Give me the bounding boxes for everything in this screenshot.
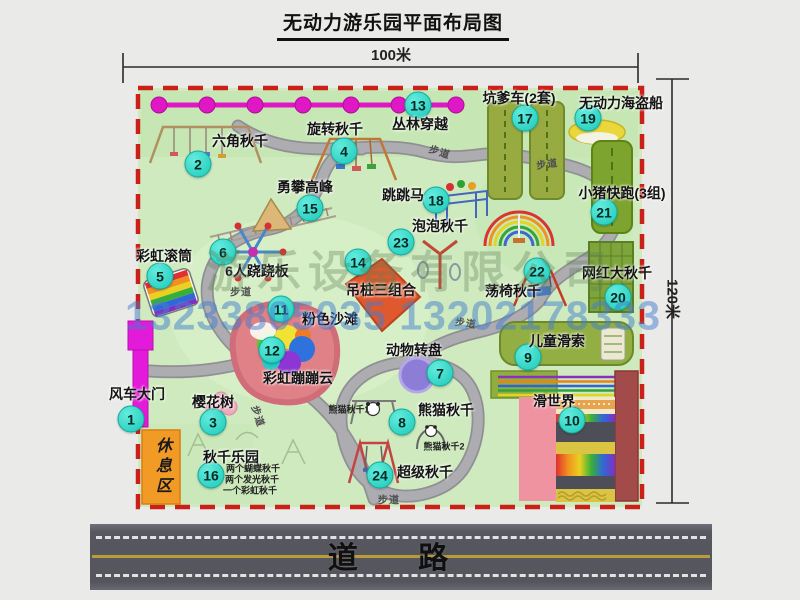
- playground-layout-map: 无动力游乐园平面布局图 100米 120米 1风车大门2六角秋千3樱花树4旋转秋…: [0, 0, 800, 600]
- height-dimension-label: 120米: [663, 279, 684, 319]
- road-label: 道 路: [328, 533, 474, 577]
- width-dimension-label: 100米: [371, 44, 411, 65]
- rest-area-structure: [142, 430, 180, 504]
- piggy-run-structure: [592, 141, 632, 233]
- animal-carousel-structure: [400, 358, 434, 392]
- road: 道 路: [90, 524, 712, 590]
- pink-beach-structure: [233, 304, 338, 403]
- kids-zipline-structure: [500, 322, 633, 365]
- big-net-swing-structure: [589, 242, 633, 312]
- page-title: 无动力游乐园平面布局图: [277, 8, 509, 41]
